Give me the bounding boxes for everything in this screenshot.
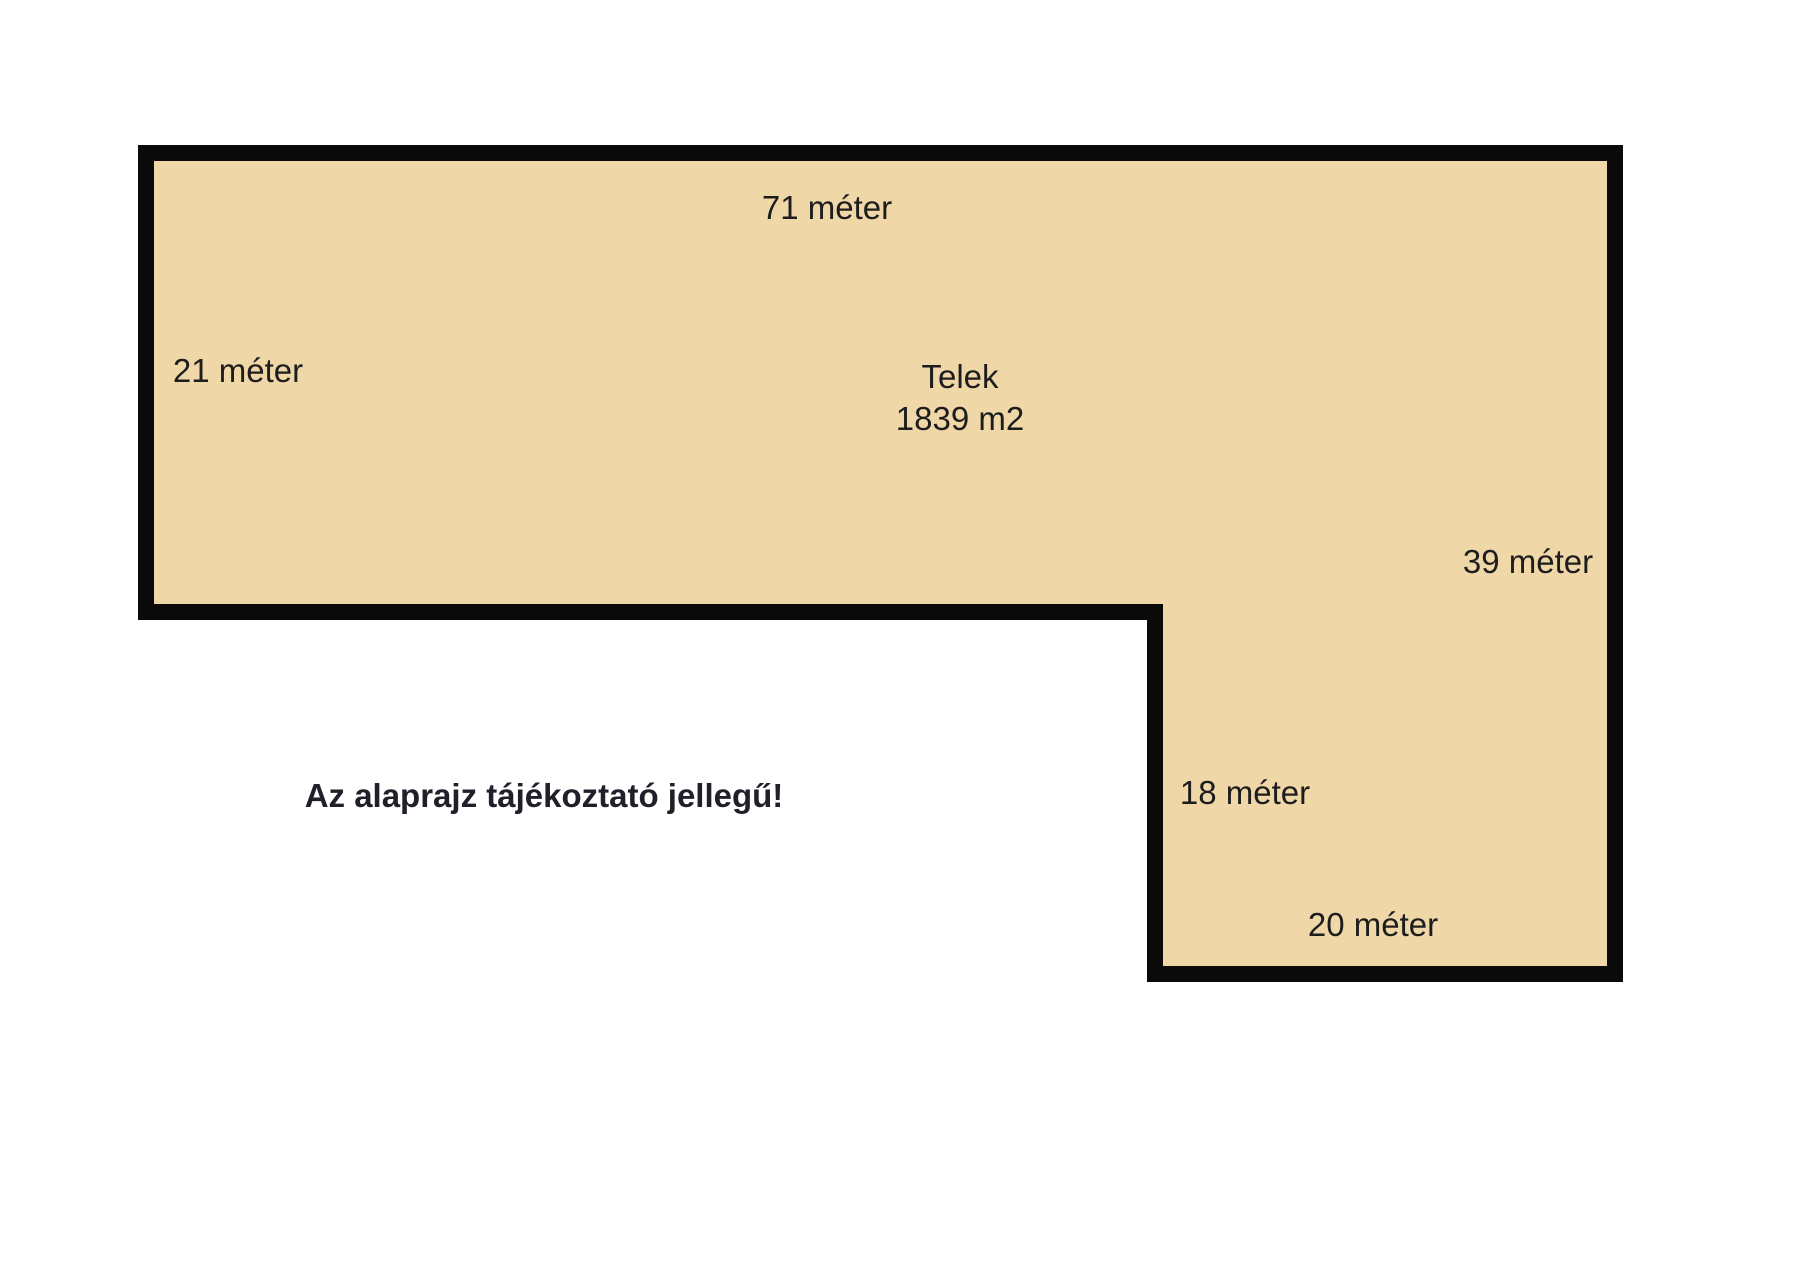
plot-area-label: 1839 m2 <box>896 401 1024 437</box>
floor-plan-canvas: 71 méter 21 méter Telek 1839 m2 39 méter… <box>0 0 1809 1280</box>
plot-outline <box>146 153 1615 974</box>
plot-name-label: Telek <box>921 359 998 395</box>
dimension-label-left: 21 méter <box>173 353 303 389</box>
dimension-label-top: 71 méter <box>762 190 892 226</box>
disclaimer-text: Az alaprajz tájékoztató jellegű! <box>305 777 784 815</box>
plot-outline-svg <box>0 0 1809 1280</box>
dimension-label-inner-vertical: 18 méter <box>1180 775 1310 811</box>
dimension-label-right: 39 méter <box>1463 544 1593 580</box>
dimension-label-bottom: 20 méter <box>1308 907 1438 943</box>
